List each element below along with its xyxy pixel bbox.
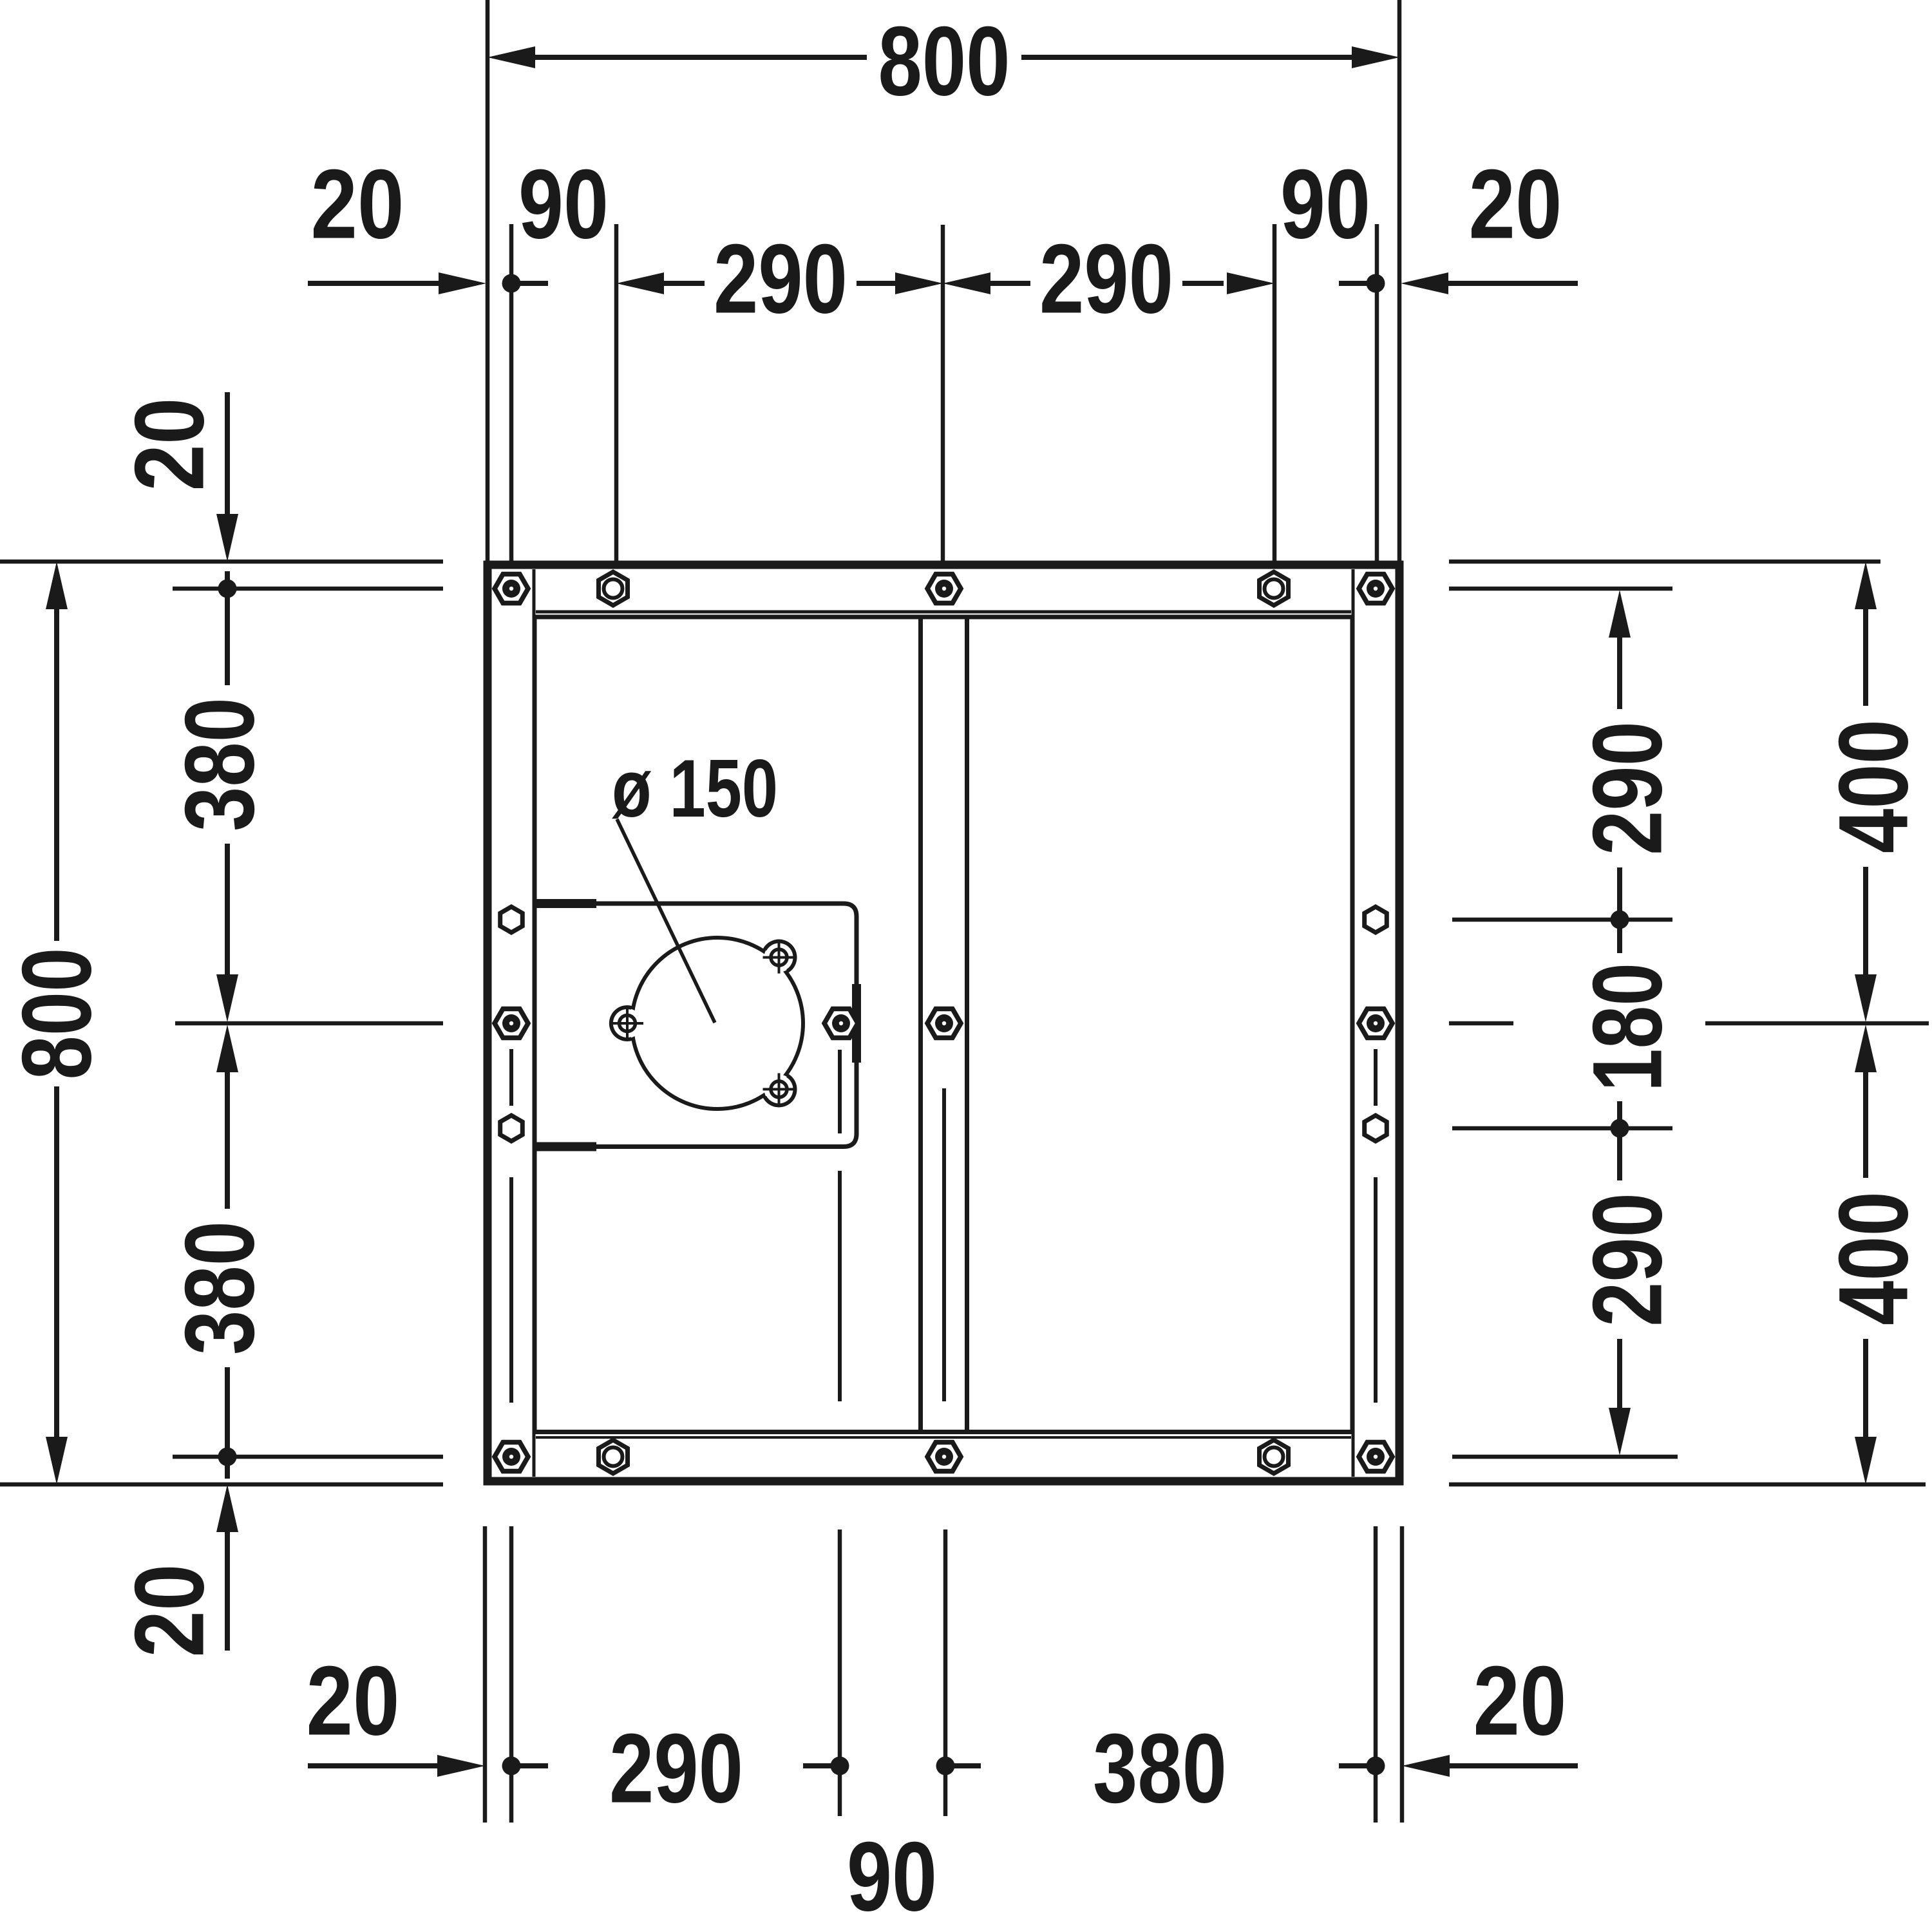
svg-text:380: 380: [165, 1221, 275, 1355]
svg-text:20: 20: [115, 398, 225, 491]
svg-text:290: 290: [609, 1714, 743, 1824]
svg-text:20: 20: [1469, 149, 1562, 260]
svg-text:290: 290: [714, 224, 848, 334]
svg-text:90: 90: [518, 149, 609, 260]
svg-text:380: 380: [165, 697, 275, 831]
svg-text:90: 90: [847, 1822, 937, 1932]
svg-text:380: 380: [1093, 1714, 1227, 1824]
svg-text:20: 20: [1473, 1646, 1567, 1756]
svg-text:290: 290: [1573, 1193, 1683, 1327]
svg-text:20: 20: [311, 149, 404, 260]
svg-text:ø 150: ø 150: [612, 743, 778, 834]
svg-text:180: 180: [1573, 963, 1683, 1092]
svg-text:800: 800: [2, 948, 112, 1080]
svg-text:290: 290: [1039, 224, 1173, 334]
svg-text:800: 800: [878, 6, 1010, 117]
svg-text:20: 20: [115, 1564, 225, 1658]
svg-text:90: 90: [1280, 149, 1370, 260]
svg-text:400: 400: [1819, 719, 1929, 853]
svg-text:400: 400: [1819, 1191, 1929, 1325]
svg-text:20: 20: [307, 1646, 400, 1756]
svg-text:290: 290: [1573, 721, 1683, 855]
